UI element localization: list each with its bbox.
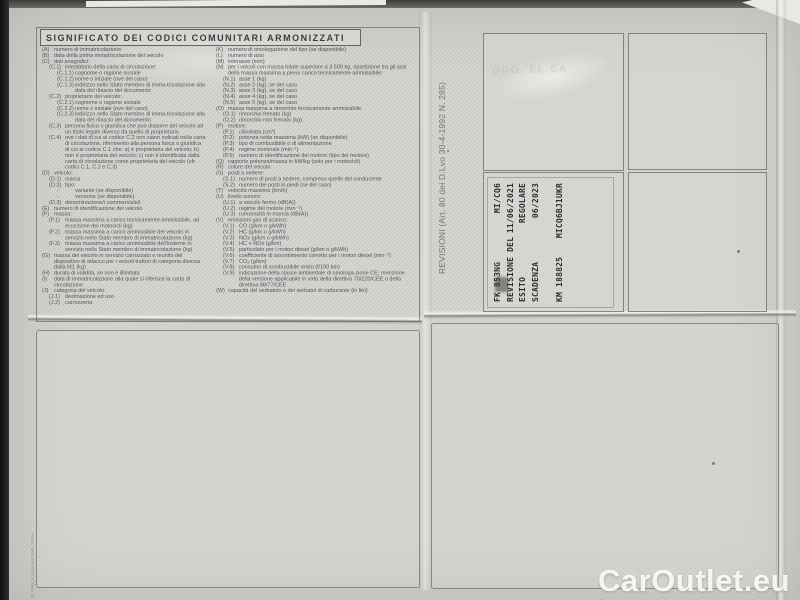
stamp-value: MICQ6BJ1UKR	[555, 183, 568, 238]
stamp-label: SCADENZA	[531, 262, 544, 302]
legend-line: (I) data di immatricolazione alla quale …	[42, 276, 206, 288]
stamp-value: 11/06/2021	[506, 183, 519, 233]
legend-text: massa massima a carico tecnicamente ammi…	[65, 218, 206, 230]
legend-text: persona fisica o giuridica che può dispo…	[65, 123, 206, 135]
legend-line: (C.3) persona fisica o giuridica che può…	[42, 123, 206, 135]
empty-box-bottom-right	[431, 323, 779, 589]
legend-code: (I)	[42, 276, 54, 288]
scan-speck	[712, 462, 715, 465]
legend-text: massa massima a carico ammissibile dell'…	[65, 241, 206, 253]
legend-column-right: (K) numero di omologazione del tipo (se …	[216, 47, 415, 318]
legend-line: (F.3) massa massima a carico ammissibile…	[42, 241, 206, 253]
legend-line: (J.2) carrozzeria	[42, 300, 206, 306]
scan-edge-left	[0, 0, 9, 600]
revisioni-box-3	[628, 33, 767, 170]
stamp-label: REVISIONE DEL	[506, 237, 519, 302]
legend-text: indirizzo nello Stato membro di imma-tri…	[75, 112, 206, 124]
revisioni-box-4	[628, 172, 767, 312]
legend-text: capacità del serbatoio o dei serbatoi di…	[228, 288, 415, 294]
stamp-value: MI/CQ6	[493, 183, 506, 213]
empty-box-bottom-left	[36, 330, 420, 588]
legend-text: indirizzo nello Stato membro di imma-tri…	[75, 82, 206, 94]
stamp-line: ESITO REGOLARE	[518, 183, 531, 302]
legend-section: SIGNIFICATO DEI CODICI COMUNITARI ARMONI…	[36, 27, 420, 322]
stamp-line: SCADENZA 06/2023	[531, 183, 544, 302]
legend-line: (F.2) massa massima a carico ammissibile…	[42, 229, 206, 241]
legend-code: (C.4)	[49, 135, 65, 170]
stamp-label: KM 188825	[555, 257, 568, 302]
scan-artifact-smear	[489, 42, 616, 112]
revisioni-side-label: REVISIONI (Art. 80 del D.Lvo 30-4-1992 N…	[437, 64, 457, 274]
legend-code: (C.2.3)	[57, 112, 75, 124]
legend-code: (N)	[216, 65, 228, 77]
legend-line: (G) massa del veicolo in servizio carroz…	[42, 253, 206, 271]
legend-line: (C.1.3) indirizzo nello Stato membro di …	[42, 82, 206, 94]
legend-column-left: (A) numero di immatricolazione (B) data …	[42, 47, 206, 318]
legend-code: (W)	[216, 288, 228, 294]
legend-text: massa del veicolo in servizio carrozzato…	[54, 253, 206, 271]
legend-text: per i veicoli con massa totale superiore…	[228, 65, 415, 77]
legend-code: (F.2)	[49, 229, 65, 241]
legend-line: (C.2.3) indirizzo nello Stato membro di …	[42, 112, 206, 124]
legend-code: (F.3)	[49, 241, 65, 253]
printer-code-wrap: Ist. Poligr. e Zecca dello Stato - Roma	[21, 536, 30, 598]
legend-code: (G)	[42, 253, 54, 271]
legend-title: SIGNIFICATO DEI CODICI COMUNITARI ARMONI…	[46, 33, 345, 43]
revisioni-side-label-wrap: REVISIONI (Art. 80 del D.Lvo 30-4-1992 N…	[437, 64, 457, 274]
scan-speck	[737, 250, 740, 253]
legend-code: (J.2)	[49, 300, 65, 306]
legend-line: (F.1) massa massima a carico tecnicament…	[42, 218, 206, 230]
legend-line: (V.9) indicazione della classe ambiental…	[216, 271, 415, 289]
legend-columns: (A) numero di immatricolazione (B) data …	[42, 47, 415, 318]
printer-code: Ist. Poligr. e Zecca dello Stato - Roma	[31, 533, 35, 598]
legend-line: (N) per i veicoli con massa totale super…	[216, 65, 415, 77]
revisioni-box-1: ODO 'EL CA	[483, 33, 624, 171]
legend-text: data di immatricolazione alla quale si r…	[54, 276, 206, 288]
legend-title-box: SIGNIFICATO DEI CODICI COMUNITARI ARMONI…	[40, 29, 361, 46]
legend-code: (V.9)	[223, 271, 239, 289]
legend-text: massa massima a carico ammissibile del v…	[65, 229, 206, 241]
stamp-line: KM 188825 MICQ6BJ1UKR	[555, 183, 568, 302]
legend-text: carrozzeria	[65, 300, 206, 306]
stamp-value: REGOLARE	[518, 183, 531, 223]
scan-speck	[447, 150, 449, 152]
stamp-value: 06/2023	[531, 183, 544, 218]
legend-line: (W) capacità del serbatoio o dei serbato…	[216, 288, 415, 294]
legend-text: ove i dati di cui al codice C.2 non sian…	[65, 135, 206, 170]
legend-code: (C.3)	[49, 123, 65, 135]
legend-line: (C.4) ove i dati di cui al codice C.2 no…	[42, 135, 206, 170]
legend-code: (C.1.3)	[57, 82, 75, 94]
stamp-label: ESITO	[518, 277, 531, 302]
watermark-caroutlet: CarOutlet.eu	[598, 563, 790, 599]
legend-text: indicazione della classe ambientale di o…	[239, 271, 415, 289]
legend-code: (F.1)	[49, 218, 65, 230]
ghost-stamp-text: ODO 'EL CA	[492, 63, 617, 76]
ink-smudge	[495, 277, 508, 292]
